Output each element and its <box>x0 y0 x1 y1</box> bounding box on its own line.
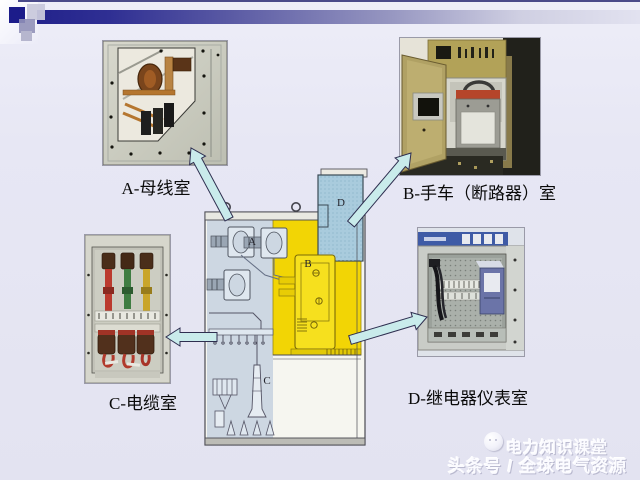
slide-root: A-母线室 <box>0 0 640 480</box>
relay-photo-relay-device <box>476 261 504 314</box>
header-square-small <box>21 31 32 41</box>
relay-photo-top-strip <box>418 232 508 246</box>
photo-cable-room <box>85 235 170 383</box>
diagram-letter-a: A <box>248 236 256 248</box>
watermark-line2: 头条号 / 全球电气资源 <box>448 452 627 477</box>
diagram-letter-b: B <box>304 258 311 270</box>
label-breaker-handcart-room: B-手车（断路器）室 <box>403 179 556 204</box>
diagram-letter-c: C <box>263 375 270 387</box>
lifting-lug-left <box>222 203 230 211</box>
cable-photo-phase-cables <box>102 253 153 313</box>
diagram-letter-d: D <box>337 197 345 209</box>
photo-relay-instrument-room <box>418 228 524 356</box>
label-cable-room: C-电缆室 <box>95 389 191 414</box>
breaker-photo-breaker-unit <box>456 90 500 148</box>
switchgear-cross-section-diagram: A B C D <box>195 163 375 453</box>
watermark: 电力知识课堂 头条号 / 全球电气资源 <box>440 426 640 478</box>
zone-relay-box <box>318 175 363 261</box>
header-square-light <box>27 4 45 20</box>
label-relay-instrument-room: D-继电器仪表室 <box>408 384 528 409</box>
watermark-logo-icon <box>484 432 503 451</box>
photo-busbar-room <box>103 41 227 165</box>
header-top-line <box>18 0 640 2</box>
header-gradient-bar <box>37 10 640 24</box>
photo-breaker-handcart-room <box>400 38 540 175</box>
breaker-photo-open-door <box>402 55 446 172</box>
lifting-lug-right <box>292 203 300 211</box>
